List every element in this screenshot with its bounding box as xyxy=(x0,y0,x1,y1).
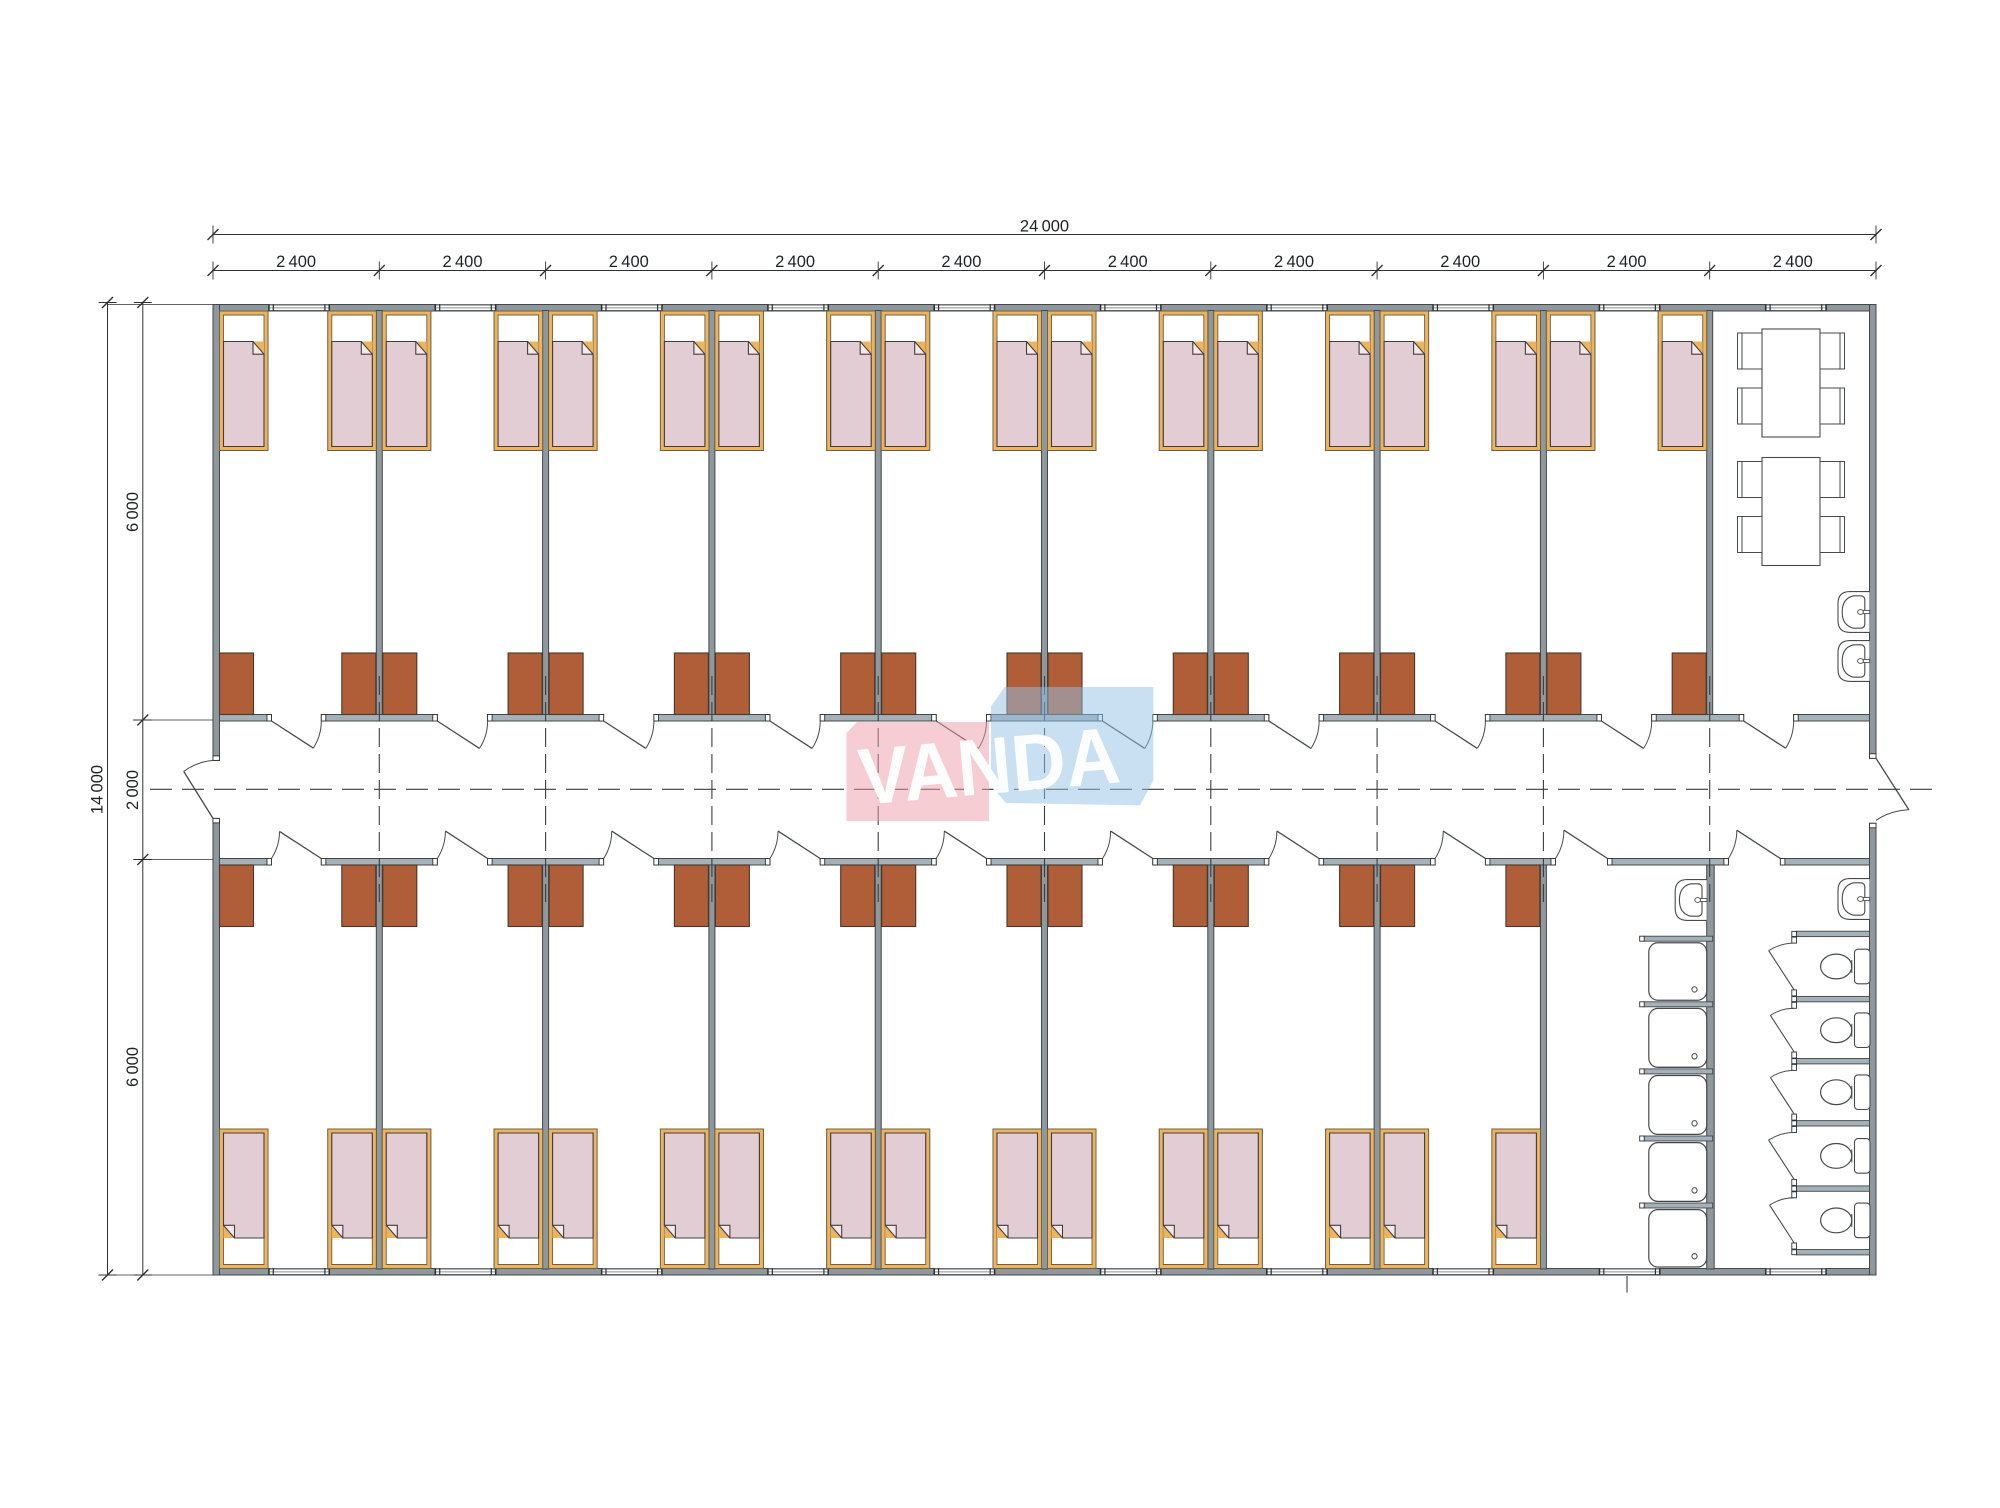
svg-text:2 400: 2 400 xyxy=(276,253,316,271)
svg-text:2 400: 2 400 xyxy=(442,253,482,271)
svg-text:6 000: 6 000 xyxy=(124,1047,142,1087)
svg-text:2 400: 2 400 xyxy=(609,253,649,271)
svg-text:2 400: 2 400 xyxy=(1274,253,1314,271)
svg-text:24 000: 24 000 xyxy=(1020,218,1069,236)
svg-text:2 400: 2 400 xyxy=(1773,253,1813,271)
svg-text:2 400: 2 400 xyxy=(941,253,981,271)
svg-text:2 400: 2 400 xyxy=(1108,253,1148,271)
svg-text:2 000: 2 000 xyxy=(124,770,142,810)
svg-text:14 000: 14 000 xyxy=(89,765,107,814)
svg-text:6 000: 6 000 xyxy=(124,492,142,532)
svg-text:2 400: 2 400 xyxy=(1607,253,1647,271)
svg-text:2 400: 2 400 xyxy=(1440,253,1480,271)
svg-text:2 400: 2 400 xyxy=(775,253,815,271)
